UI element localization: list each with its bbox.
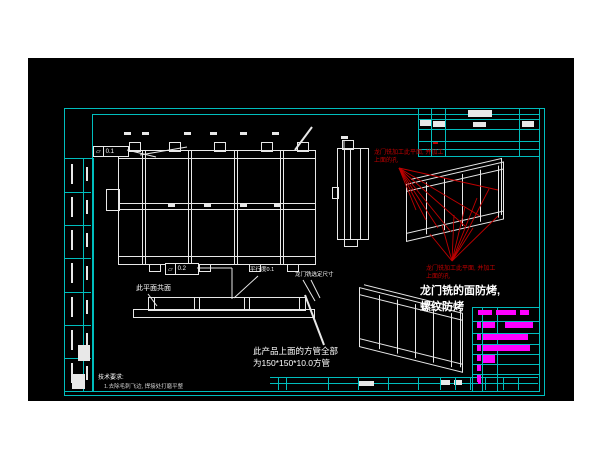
note-tube-spec-line2: 为150*150*10.0方管 [253,359,330,369]
plan-post [280,151,284,264]
hatched-panel [465,177,478,217]
rotated-text-bar [86,167,88,181]
flatness-symbol-icon: ▱ [94,147,104,156]
red-note-top-line2: 上面的孔 [374,158,398,165]
title-strip-divider [358,377,359,390]
text-block [420,120,431,126]
plan-top-stub [261,142,273,152]
table-text-bar [483,355,495,363]
title-strip-divider [278,377,279,390]
strip-divider [83,192,84,225]
plan-post [234,151,238,264]
dimension-mark [124,132,131,135]
revision-strip-row [65,225,91,259]
text-block [358,381,374,386]
title-strip-divider [503,377,504,390]
strip-divider [83,159,84,192]
flatness-symbol-icon: ▱ [166,264,176,274]
plan-top-stub [169,142,181,152]
dimension-mark [240,132,247,135]
rotated-text-bar [71,263,73,283]
rotated-text-bar [71,230,73,250]
iso-post [451,313,454,368]
rotated-text-bar [86,200,88,214]
text-block [468,110,492,117]
rotated-text-bar [71,164,73,184]
iso-post [498,165,501,218]
hatched-panel [287,164,311,201]
gdt-flatness-beam: ▱ 0.2 [165,263,199,275]
note-tube-spec-line1: 此产品上面的方管全部 [253,347,338,357]
note-milling-line2: 螺纹防烤 [420,301,464,314]
table-text-bar [477,365,481,371]
text-block [522,121,534,127]
note-coplanar: 此平面共面 [136,285,171,293]
rotated-text-bar [71,297,73,317]
table-text-bar [483,322,495,328]
cad-canvas[interactable]: ▱ 0.1 ▱ 0.2 此平面共面 平行度0.1 龙门铣选定尺寸 此产品上面的方… [28,58,574,401]
rotated-text-bar [71,330,73,350]
title-strip-divider [286,377,287,390]
table-text-bar [483,345,530,351]
title-strip-divider [518,377,519,390]
bottom-title-strip [270,377,538,378]
section-view [337,148,369,240]
hatched-panel [382,303,395,343]
dimension-mark [272,132,279,135]
table-text-bar [477,345,481,351]
hatched-panel [195,213,229,250]
table-text-bar [483,334,528,340]
beam-elevation-rail [148,297,306,311]
text-block [440,380,450,385]
hatched-panel [429,186,442,226]
note-parallelism: 平行度0.1 [250,267,274,273]
dimension-mark [168,204,175,207]
table-text-bar [520,310,529,315]
title-strip-divider [328,377,329,390]
red-note-bottom-line1: 龙门铣加工此平面, 并加工 [426,266,495,273]
strip-divider [83,225,84,258]
rotated-text-bar [86,233,88,247]
plan-bottom-stub [199,264,211,272]
plan-view [118,150,316,265]
table-text-bar [478,310,492,315]
table-text-bar [477,375,481,382]
revision-strip-row [65,192,91,226]
hatched-panel [364,298,377,338]
gdt-flatness-plan: ▱ 0.1 [93,146,129,157]
plan-left-extension [106,189,120,211]
dimension-mark [210,132,217,135]
hatched-panel [149,164,183,201]
rotated-text-bar [86,266,88,280]
plan-top-stub [214,142,226,152]
dimension-mark [341,136,348,139]
dimension-mark [204,204,211,207]
hatched-panel [287,213,311,250]
red-note-top-line1: 龙门铣加工此平面, 并加工 [374,150,443,157]
hatched-panel [418,312,431,352]
hatched-panel [400,307,413,347]
text-block [433,121,445,127]
hatched-panel [411,190,424,230]
plan-bottom-stub [287,264,299,272]
plan-bottom-stub [149,264,161,272]
table-text-bar [505,322,533,328]
dimension-mark [274,204,281,207]
dimension-mark [142,132,149,135]
tech-requirements-title: 技术要求: [98,375,124,382]
strip-divider [83,292,84,325]
hatched-panel [149,213,183,250]
dimension-mark [184,132,191,135]
title-strip-divider [470,377,471,390]
tech-requirements-item: 1.去除毛刺飞边, 焊接处打磨平整 [104,384,183,390]
text-block [78,345,90,361]
red-note-bottom-line2: 上面的孔 [426,274,450,281]
hatched-panel [436,316,450,356]
hatched-panel [241,164,275,201]
plan-top-stub [297,142,309,152]
plan-post [188,151,192,264]
plan-top-stub [129,142,141,152]
note-gantry-fit: 龙门铣选定尺寸 [295,272,334,278]
rotated-text-bar [86,300,88,314]
plan-post [142,151,146,264]
table-text-bar [496,310,516,315]
title-strip-divider [485,377,486,390]
table-text-bar [477,334,481,340]
rotated-text-bar [86,366,88,380]
text-block [72,374,85,389]
title-strip-divider [388,377,389,390]
revision-strip-row [65,159,91,193]
title-strip-divider [418,377,419,390]
dimension-mark [240,204,247,207]
strip-divider [83,258,84,291]
revision-strip-row [65,258,91,292]
hatched-panel [195,164,229,201]
hatched-panel [483,173,497,213]
text-block [473,122,486,127]
rotated-text-bar [71,197,73,217]
text-block [433,142,438,144]
hatched-panel [447,182,460,222]
title-strip-divider [455,377,456,390]
revision-strip-row [65,292,91,326]
cad-application-page: ▱ 0.1 ▱ 0.2 此平面共面 平行度0.1 龙门铣选定尺寸 此产品上面的方… [0,0,600,450]
title-strip-divider [440,377,441,390]
table-text-bar [477,322,481,328]
note-milling-line1: 龙门铣的面防烤, [420,285,500,298]
hatched-panel [241,213,275,250]
table-text-bar [477,355,481,361]
